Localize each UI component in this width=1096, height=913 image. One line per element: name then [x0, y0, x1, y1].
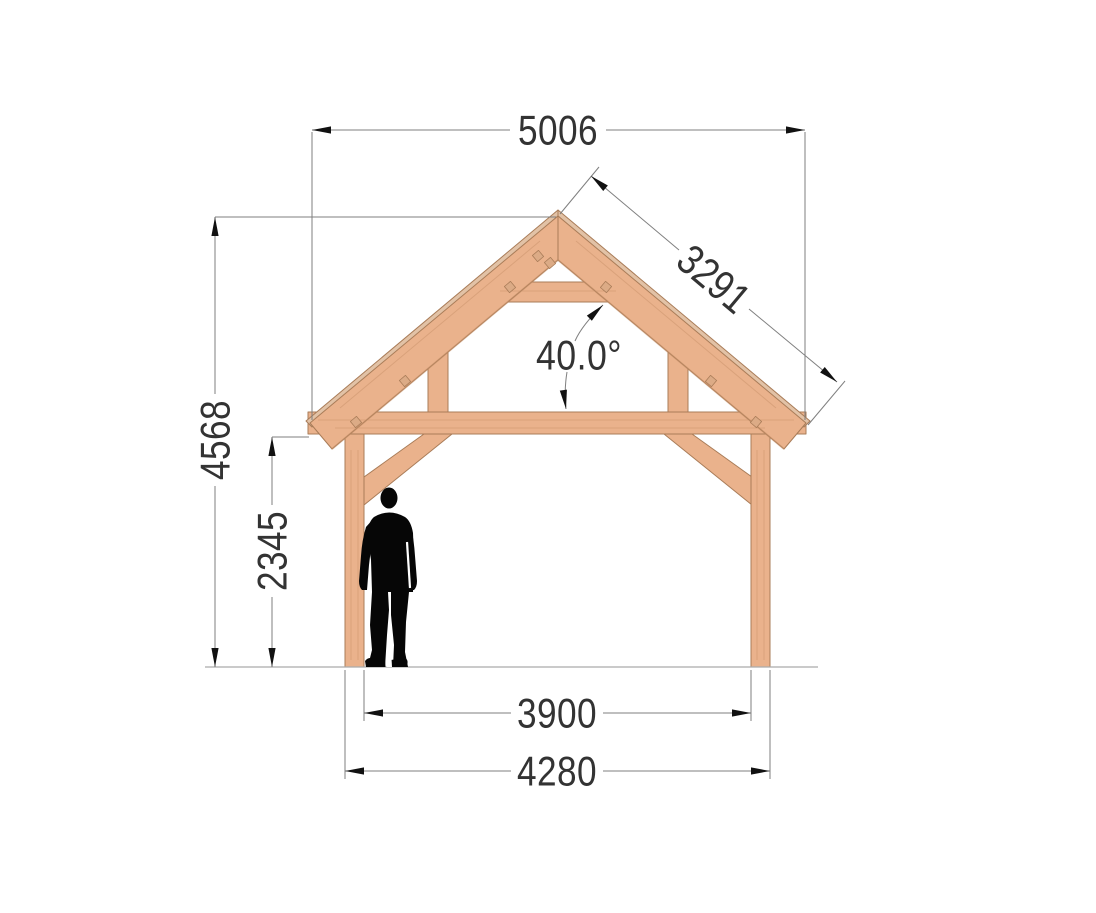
dim-arrow	[268, 648, 275, 667]
dim-arrow	[312, 126, 331, 133]
dim-arrow	[211, 217, 218, 236]
elevation-drawing-page: 5006 3291 40.0°	[0, 0, 1096, 913]
dim-arrow	[786, 126, 805, 133]
knee-brace-left	[364, 434, 452, 505]
dim-arrow	[364, 709, 383, 716]
dim-arrow	[268, 437, 275, 456]
dim-label-outer-post-span: 4280	[517, 748, 597, 795]
dim-inner-post-span: 3900	[364, 670, 751, 737]
person-leg-right	[391, 592, 409, 667]
knee-brace-right	[664, 434, 752, 505]
dim-clear-height-under-eave: 2345	[249, 437, 310, 667]
extension-line	[560, 167, 599, 214]
dim-roof-angle: 40.0°	[536, 302, 622, 409]
dim-label-overall-height: 4568	[192, 400, 239, 480]
dim-arrow	[211, 648, 218, 667]
post-right	[751, 434, 770, 667]
dim-label-roof-angle: 40.0°	[536, 332, 622, 379]
extension-line	[808, 381, 845, 425]
dim-label-roof-overall-width: 5006	[518, 107, 598, 154]
dim-label-rafter-slope-length: 3291	[668, 235, 759, 322]
dim-label-clear-height: 2345	[249, 511, 296, 591]
person-leg-left	[368, 592, 389, 667]
person-head	[381, 488, 398, 509]
dim-arrow	[751, 767, 770, 774]
dim-arrow	[345, 767, 364, 774]
post-left	[345, 434, 364, 667]
dim-arrow	[560, 390, 570, 410]
elevation-drawing-canvas: 5006 3291 40.0°	[0, 0, 1096, 913]
dim-arrow	[732, 709, 751, 716]
tie-beam	[308, 412, 806, 434]
person-silhouette	[359, 488, 417, 668]
dim-label-inner-post-span: 3900	[517, 690, 597, 737]
